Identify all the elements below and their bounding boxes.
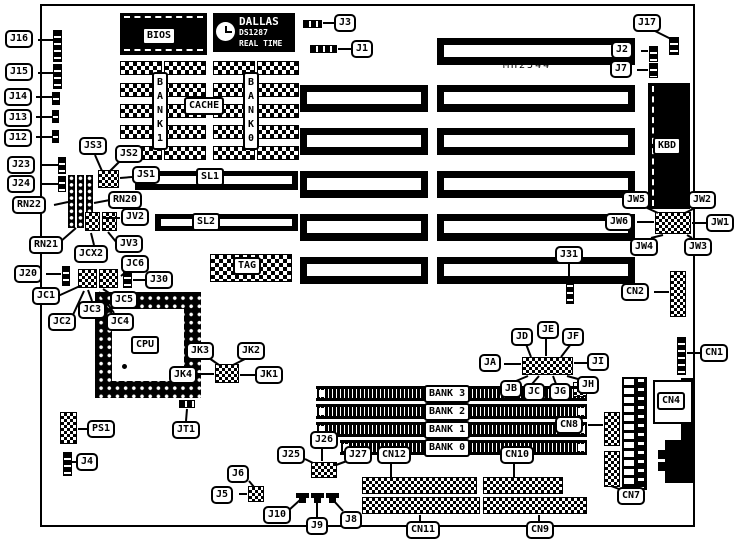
- simm-bank3-label: BANK 3: [424, 385, 470, 403]
- callout-jk2: JK2: [237, 342, 265, 360]
- callout-j14: J14: [4, 88, 32, 106]
- callout-j13: J13: [4, 109, 32, 127]
- callout-jt1: JT1: [172, 421, 200, 439]
- j14-conn: [52, 92, 60, 105]
- rtc-brand-text: DALLAS: [239, 15, 279, 28]
- power-pin-column: [638, 379, 644, 488]
- j8-conn-body: [329, 498, 336, 503]
- sl2-slot-stripe: [161, 219, 292, 226]
- callout-rn21: RN21: [29, 236, 63, 254]
- j24-conn: [58, 176, 66, 192]
- j25-j26-j27-jumper-block: [311, 462, 337, 478]
- callout-jh: JH: [577, 376, 599, 394]
- callout-j15: J15: [5, 63, 33, 81]
- callout-rn22: RN22: [12, 196, 46, 214]
- callout-jv3: JV3: [115, 235, 143, 253]
- callout-jw1: JW1: [706, 214, 734, 232]
- callout-cn9: CN9: [526, 521, 554, 539]
- j16-conn: [53, 30, 62, 62]
- kbd-label: KBD: [653, 137, 681, 155]
- callout-j9: J9: [306, 517, 328, 535]
- cn1-conn: [677, 337, 686, 375]
- ps1-conn: [60, 412, 77, 444]
- cpu-label: CPU: [131, 336, 159, 354]
- callout-j31: J31: [555, 246, 583, 264]
- din-connector-tab: [658, 450, 666, 459]
- callout-jf: JF: [562, 328, 584, 346]
- power-pin-column: [624, 379, 634, 488]
- callout-jk1: JK1: [255, 366, 283, 384]
- callout-j20: J20: [14, 265, 42, 283]
- callout-jc3: JC3: [78, 301, 106, 319]
- callout-js3: JS3: [79, 137, 107, 155]
- callout-jv2: JV2: [121, 208, 149, 226]
- callout-j2: J2: [611, 41, 633, 59]
- callout-ja: JA: [479, 354, 501, 372]
- callout-jk4: JK4: [169, 366, 197, 384]
- callout-jc1: JC1: [32, 287, 60, 305]
- sram-chip: [257, 146, 299, 160]
- j1-conn: [310, 45, 337, 53]
- sram-bank-right-label: BANK0: [243, 72, 259, 150]
- sram-chip: [257, 83, 299, 97]
- rn21-network: [77, 175, 84, 228]
- jk-jumper-block: [215, 364, 239, 383]
- callout-cn7: CN7: [617, 487, 645, 505]
- rtc-type-text: REAL TIME: [239, 39, 282, 48]
- j12-conn: [52, 130, 59, 143]
- simm-end-key: [578, 444, 584, 451]
- callout-jw5: JW5: [622, 191, 650, 209]
- rtc-part-text: DS1287: [239, 28, 268, 37]
- cpu-pin1-dot: [122, 364, 127, 369]
- simm-bank2-label: BANK 2: [424, 403, 470, 421]
- callout-je: JE: [537, 321, 559, 339]
- rn22-network: [68, 175, 75, 228]
- j7-conn: [649, 63, 658, 78]
- bios-chip-dash-top: [124, 16, 203, 18]
- isa-slot-stripe: [444, 264, 628, 276]
- j5-j6-jumper-block: [248, 486, 264, 502]
- cn12-conn: [362, 477, 477, 494]
- j30-conn: [123, 271, 132, 288]
- isa-slot-stripe: [444, 45, 628, 57]
- ja-ji-jumper-block: [522, 357, 573, 375]
- jv2-jumper-block: [85, 212, 100, 231]
- callout-jw6: JW6: [605, 213, 633, 231]
- j2-conn: [649, 46, 658, 62]
- callout-j8: J8: [340, 511, 362, 529]
- callout-cn10: CN10: [500, 446, 534, 464]
- isa-slot-stripe: [444, 221, 628, 233]
- motherboard-diagram: DALLAS DS1287 REAL TIME MH2544 BIOSCACHE…: [0, 0, 743, 549]
- cn2-conn: [670, 271, 686, 317]
- j9-conn-body: [314, 498, 321, 503]
- callout-j7: J7: [610, 60, 632, 78]
- din-connector: [665, 440, 695, 483]
- isa-slot-stripe: [444, 178, 628, 190]
- callout-jw4: JW4: [630, 238, 658, 256]
- cn11-conn: [362, 497, 480, 514]
- tag-label: TAG: [233, 257, 261, 275]
- jc-jumper-block-1: [78, 269, 97, 288]
- sl2-label: SL2: [192, 213, 220, 231]
- rtc-chip: DALLAS DS1287 REAL TIME: [213, 13, 295, 52]
- callout-jw2: JW2: [688, 191, 716, 209]
- cn7-conn: [604, 451, 620, 487]
- callout-j26: J26: [310, 431, 338, 449]
- jv3-jumper-block: [102, 212, 117, 231]
- callout-j24: J24: [7, 175, 35, 193]
- bios-label: BIOS: [142, 27, 176, 45]
- cache-label: CACHE: [184, 97, 224, 115]
- simm-end-key: [319, 390, 325, 397]
- clock-icon: [216, 22, 235, 41]
- callout-jc2: JC2: [48, 313, 76, 331]
- callout-jg: JG: [549, 383, 571, 401]
- j13-conn: [52, 110, 59, 123]
- sram-chip: [164, 125, 206, 139]
- callout-cn11: CN11: [406, 521, 440, 539]
- j4-conn: [63, 452, 72, 476]
- j17-conn: [669, 37, 679, 55]
- callout-j6: J6: [227, 465, 249, 483]
- j10-conn-body: [299, 498, 306, 503]
- sram-chip: [257, 125, 299, 139]
- sram-chip: [257, 61, 299, 75]
- jt1-conn: [179, 400, 195, 408]
- bios-chip-dash-bottom: [124, 49, 203, 51]
- simm-bank1-label: BANK 1: [424, 421, 470, 439]
- callout-jcx2: JCX2: [74, 245, 108, 263]
- callout-cn12: CN12: [377, 446, 411, 464]
- isa-slot-stripe: [444, 135, 628, 147]
- callout-js1: JS1: [132, 166, 160, 184]
- cn10-conn: [483, 477, 563, 494]
- callout-j1: J1: [351, 40, 373, 58]
- simm-end-key: [319, 408, 325, 415]
- j15-conn: [53, 64, 62, 89]
- callout-jc6: JC6: [121, 255, 149, 273]
- callout-cn1: CN1: [700, 344, 728, 362]
- simm-bank0-label: BANK 0: [424, 439, 470, 457]
- cn4-label: CN4: [657, 392, 685, 410]
- din-connector-tab: [658, 462, 666, 471]
- cn8-conn: [604, 412, 620, 446]
- callout-jd: JD: [511, 328, 533, 346]
- callout-jc: JC: [523, 383, 545, 401]
- isa-slot-stripe: [307, 264, 421, 276]
- simm-end-key: [578, 408, 584, 415]
- sram-chip: [164, 146, 206, 160]
- callout-j17: J17: [633, 14, 661, 32]
- sl1-label: SL1: [196, 168, 224, 186]
- sram-bank-left-label: BANK1: [152, 72, 168, 150]
- isa-slot-stripe: [307, 92, 421, 104]
- callout-j30: J30: [145, 271, 173, 289]
- callout-j10: J10: [263, 506, 291, 524]
- callout-j12: J12: [4, 129, 32, 147]
- callout-jk3: JK3: [186, 342, 214, 360]
- cn9-conn: [483, 497, 587, 514]
- callout-j25: J25: [277, 446, 305, 464]
- j3-conn: [303, 20, 322, 28]
- isa-slot-stripe: [444, 92, 628, 104]
- j23-conn: [58, 157, 66, 174]
- callout-ps1: PS1: [87, 420, 115, 438]
- sram-chip: [164, 83, 206, 97]
- isa-slot-stripe: [307, 178, 421, 190]
- j31-conn: [566, 279, 574, 304]
- jc-jumper-block-2: [99, 269, 118, 288]
- sram-chip: [257, 104, 299, 118]
- callout-jc5: JC5: [110, 291, 138, 309]
- board-model-text: MH2544: [503, 60, 551, 71]
- callout-j27: J27: [344, 446, 372, 464]
- callout-j16: J16: [5, 30, 33, 48]
- j20-conn: [62, 266, 70, 286]
- callout-js2: JS2: [115, 145, 143, 163]
- isa-slot-stripe: [307, 221, 421, 233]
- callout-j5: J5: [211, 486, 233, 504]
- callout-ji: JI: [587, 353, 609, 371]
- callout-j3: J3: [334, 14, 356, 32]
- callout-j4: J4: [76, 453, 98, 471]
- callout-rn20: RN20: [108, 191, 142, 209]
- jw-jumper-block: [655, 212, 691, 234]
- js-jumper-block: [98, 170, 119, 188]
- callout-cn8: CN8: [555, 416, 583, 434]
- callout-j23: J23: [7, 156, 35, 174]
- callout-jc4: JC4: [106, 313, 134, 331]
- sram-chip: [164, 61, 206, 75]
- callout-jb: JB: [500, 380, 522, 398]
- callout-cn2: CN2: [621, 283, 649, 301]
- callout-jw3: JW3: [684, 238, 712, 256]
- isa-slot-stripe: [307, 135, 421, 147]
